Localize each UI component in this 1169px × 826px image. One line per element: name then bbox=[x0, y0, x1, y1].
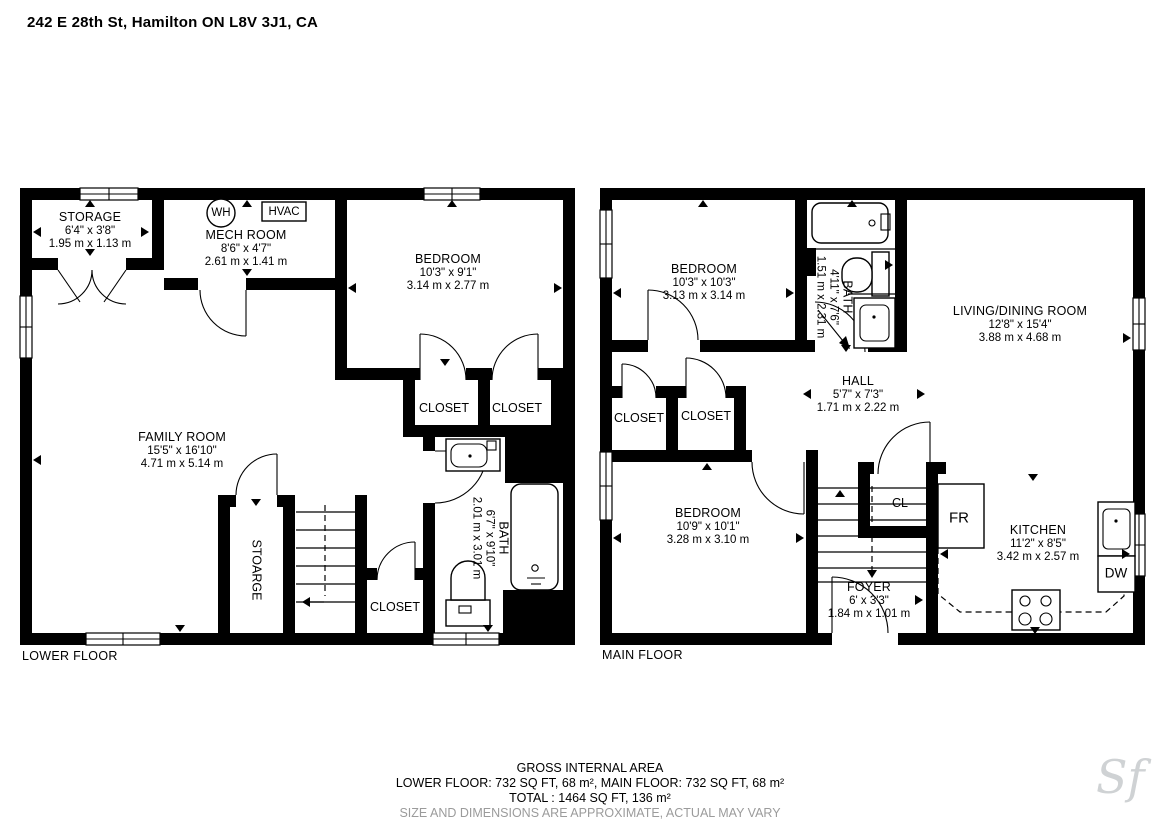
room-label-lower-closet-c: CLOSET bbox=[370, 601, 420, 614]
room-label-foyer: FOYER 6' x 3'3" 1.84 m x 1.01 m bbox=[828, 581, 910, 622]
room-label-lower-bedroom: BEDROOM 10'3" x 9'1" 3.14 m x 2.77 m bbox=[407, 253, 489, 294]
main-floor-caption: MAIN FLOOR bbox=[602, 648, 683, 662]
room-label-main-closet-a: CLOSET bbox=[614, 412, 664, 425]
kitchen-sink-icon bbox=[1098, 502, 1135, 556]
room-label-main-closet-b: CLOSET bbox=[681, 410, 731, 423]
room-label-lower-bath: BATH 6'7" x 9'10" 2.01 m x 3.01 m bbox=[469, 497, 510, 579]
stove-icon bbox=[1012, 590, 1060, 630]
room-label-main-bedroom1: BEDROOM 10'3" x 10'3" 3.13 m x 3.14 m bbox=[663, 263, 745, 304]
total-area: TOTAL : 1464 SQ FT, 136 m² bbox=[396, 791, 784, 806]
room-label-storage: STORAGE 6'4" x 3'8" 1.95 m x 1.13 m bbox=[49, 211, 131, 252]
room-label-lower-closet-b: CLOSET bbox=[492, 402, 542, 415]
lower-bath-sink-icon bbox=[446, 439, 500, 471]
bathtub-icon bbox=[511, 484, 558, 590]
lower-stairs-icon bbox=[296, 505, 355, 607]
gross-area-heading: GROSS INTERNAL AREA bbox=[396, 761, 784, 776]
page-title: 242 E 28th St, Hamilton ON L8V 3J1, CA bbox=[27, 14, 318, 31]
gross-area-summary: GROSS INTERNAL AREA LOWER FLOOR: 732 SQ … bbox=[396, 761, 784, 821]
floorplan-page: 242 E 28th St, Hamilton ON L8V 3J1, CA S… bbox=[0, 0, 1169, 826]
room-label-main-bath: BATH 4'11" x 7'6" 1.51 m x 2.31 m bbox=[813, 256, 854, 338]
water-heater-label: WH bbox=[211, 207, 230, 219]
disclaimer-text: SIZE AND DIMENSIONS ARE APPROXIMATE, ACT… bbox=[396, 806, 784, 821]
room-label-living-dining: LIVING/DINING ROOM 12'8" x 15'4" 3.88 m … bbox=[953, 305, 1087, 346]
room-label-kitchen: KITCHEN 11'2" x 8'5" 3.42 m x 2.57 m bbox=[997, 524, 1079, 565]
room-label-cl-closet: CL bbox=[892, 496, 908, 510]
dishwasher-label: DW bbox=[1105, 566, 1128, 581]
room-label-mech-room: MECH ROOM 8'6" x 4'7" 2.61 m x 1.41 m bbox=[205, 229, 287, 270]
room-label-hall: HALL 5'7" x 7'3" 1.71 m x 2.22 m bbox=[817, 375, 899, 416]
brand-watermark-logo: Sf bbox=[1096, 750, 1145, 804]
room-label-main-bedroom2: BEDROOM 10'9" x 10'1" 3.28 m x 3.10 m bbox=[667, 507, 749, 548]
room-label-stoarge: STOARGE bbox=[250, 540, 263, 601]
fridge-label: FR bbox=[949, 510, 969, 527]
floor-areas: LOWER FLOOR: 732 SQ FT, 68 m², MAIN FLOO… bbox=[396, 776, 784, 791]
hvac-label: HVAC bbox=[268, 206, 299, 218]
floorplan-canvas bbox=[0, 0, 1169, 826]
main-bathtub-icon bbox=[807, 203, 895, 249]
room-label-family-room: FAMILY ROOM 15'5" x 16'10" 4.71 m x 5.14… bbox=[138, 431, 226, 472]
room-label-lower-closet-a: CLOSET bbox=[419, 402, 469, 415]
lower-floor-caption: LOWER FLOOR bbox=[22, 649, 118, 663]
main-bath-sink-icon bbox=[854, 298, 895, 348]
